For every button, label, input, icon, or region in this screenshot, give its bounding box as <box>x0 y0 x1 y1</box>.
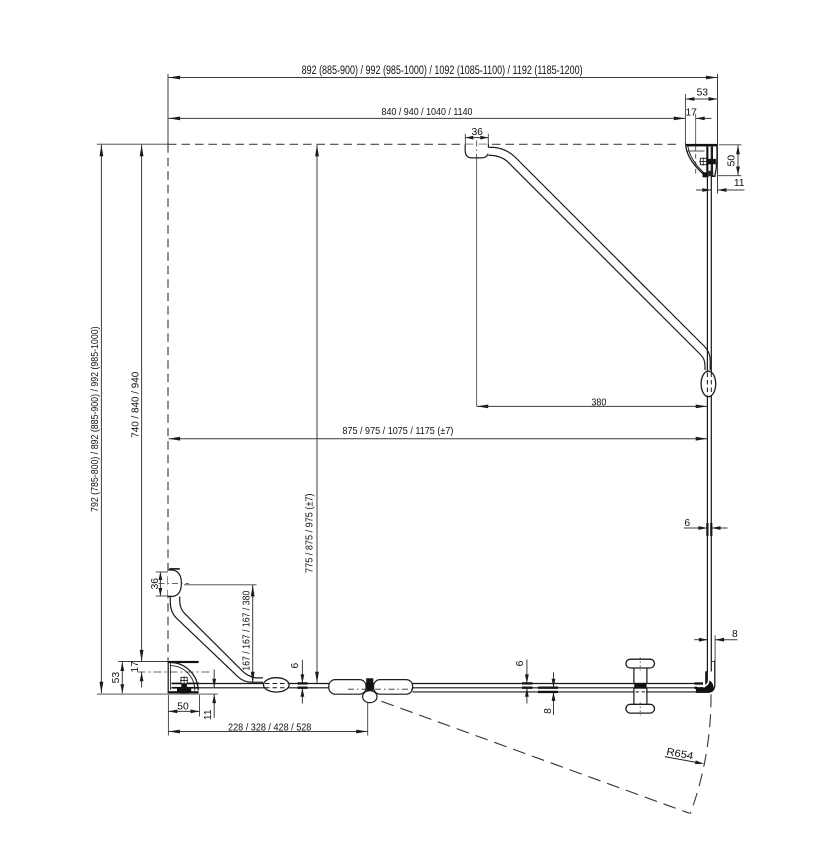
svg-text:6: 6 <box>290 662 301 668</box>
svg-text:740 / 840 / 940: 740 / 840 / 940 <box>129 372 141 438</box>
svg-text:167 / 167 / 167 / 380: 167 / 167 / 167 / 380 <box>240 591 252 671</box>
svg-text:6: 6 <box>515 660 526 666</box>
svg-text:11: 11 <box>734 178 745 189</box>
svg-text:228 / 328 / 428 / 528: 228 / 328 / 428 / 528 <box>228 722 312 733</box>
svg-text:8: 8 <box>543 708 554 714</box>
svg-text:792 (785-800) / 892 (885-900): 792 (785-800) / 892 (885-900) / 992 (985… <box>89 326 101 512</box>
svg-text:53: 53 <box>697 88 709 99</box>
svg-text:53: 53 <box>111 672 122 684</box>
svg-text:380: 380 <box>591 396 606 408</box>
svg-text:775 / 875 / 975 (±7): 775 / 875 / 975 (±7) <box>303 493 315 573</box>
svg-text:875 / 975 / 1075 / 1175 (±7): 875 / 975 / 1075 / 1175 (±7) <box>342 425 453 437</box>
svg-text:17: 17 <box>130 661 141 673</box>
svg-text:892 (885-900) / 992 (985-1000): 892 (885-900) / 992 (985-1000) / 1092 (1… <box>302 65 583 77</box>
svg-text:50: 50 <box>177 702 189 713</box>
svg-text:36: 36 <box>471 127 483 138</box>
svg-text:11: 11 <box>203 709 214 720</box>
svg-text:8: 8 <box>732 629 738 640</box>
svg-text:6: 6 <box>684 518 690 529</box>
svg-text:50: 50 <box>727 155 738 167</box>
svg-text:840 / 940 / 1040 / 1140: 840 / 940 / 1040 / 1140 <box>382 106 473 118</box>
svg-text:17: 17 <box>685 107 697 118</box>
